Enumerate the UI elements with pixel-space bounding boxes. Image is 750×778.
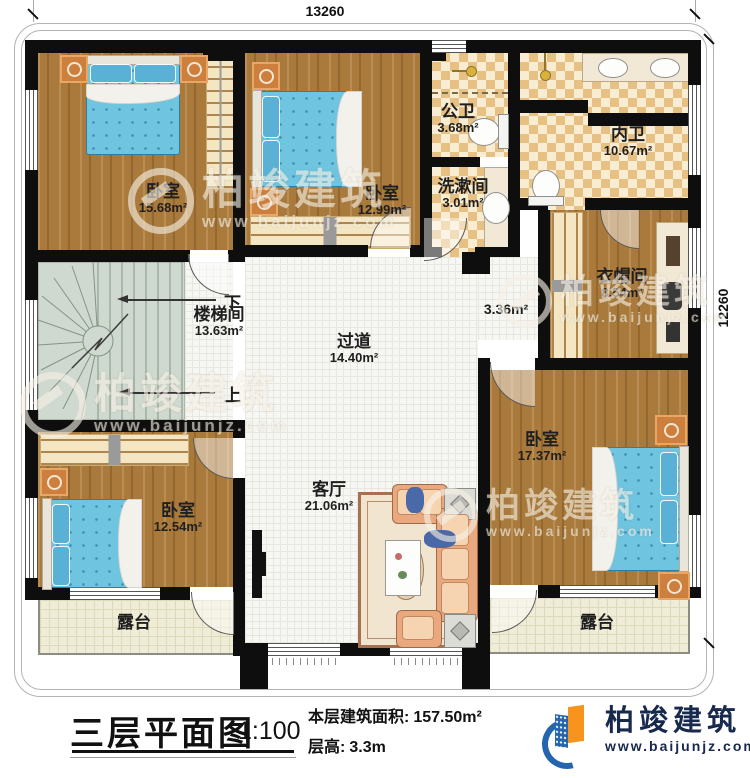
room-label-cloakroom: 衣帽间 8.54m² — [597, 268, 648, 299]
pillow — [134, 64, 176, 83]
sofa-cushion — [441, 548, 469, 580]
wall — [233, 478, 245, 656]
dimension-top: 13260 — [270, 3, 380, 19]
room-label-bedroom-top-left: 卧室 15.68m² — [139, 183, 187, 214]
tv — [252, 530, 262, 598]
person — [424, 530, 456, 548]
toilet-tank — [528, 196, 564, 206]
room-label-terrace-right: 露台 — [580, 614, 614, 632]
toilet-tank — [498, 114, 509, 149]
wall — [585, 198, 688, 210]
desk-chair — [662, 282, 682, 310]
dimension-right: 12260 — [715, 273, 731, 343]
nightstand — [40, 468, 68, 496]
window — [432, 40, 466, 53]
stairs-up-line — [130, 392, 215, 394]
wardrobe — [40, 434, 189, 466]
room-label-living-room: 客厅 21.06m² — [305, 481, 353, 512]
desk-items — [666, 236, 680, 266]
wall — [233, 587, 245, 600]
room-label-stairwell: 楼梯间 13.63m² — [194, 306, 245, 337]
extension-line — [33, 0, 34, 22]
wall — [535, 358, 701, 370]
window — [560, 585, 655, 598]
window — [688, 228, 701, 308]
desk-items — [666, 322, 680, 342]
staircase — [38, 262, 185, 420]
pillow — [52, 546, 70, 586]
floor-area-line: 本层建筑面积:157.50m² — [304, 703, 482, 733]
railing — [272, 658, 336, 665]
window — [25, 498, 38, 578]
bed-sheet-fold — [336, 91, 362, 187]
brand-website: www.baijunjz.com — [605, 736, 750, 757]
wall — [233, 53, 245, 250]
wall — [233, 432, 245, 438]
wall — [25, 40, 701, 53]
room-label-bedroom-bottom-right: 卧室 17.37m² — [518, 431, 566, 462]
floor-area-label: 本层建筑面积: — [308, 709, 409, 726]
cloakroom-hangers — [551, 212, 583, 360]
bed-headboard — [679, 446, 689, 572]
fixture-arm — [452, 70, 467, 72]
floor-area-value: 157.50m² — [413, 709, 482, 726]
floor-height-value: 3.3m — [349, 739, 385, 756]
window — [70, 587, 160, 600]
stairs-up-arrow — [119, 388, 130, 396]
side-table — [444, 614, 476, 648]
fixture-arm — [544, 53, 546, 71]
shower-head — [540, 70, 551, 81]
railing — [394, 658, 458, 665]
nightstand — [180, 55, 208, 83]
stairs-up-label: 上 — [224, 381, 241, 406]
room-label-bedroom-top-mid: 卧室 12.99m² — [358, 185, 406, 216]
nightstand — [655, 415, 687, 445]
sofa-cushion — [402, 616, 434, 640]
person — [406, 487, 424, 513]
plan-scale: 1:100 — [238, 717, 301, 746]
nightstand — [60, 55, 88, 83]
window — [25, 90, 38, 170]
wall — [478, 585, 490, 598]
bed-sheet-fold — [592, 447, 618, 571]
pillow — [660, 452, 678, 496]
floor-height-line: 层高:3.3m — [304, 733, 482, 763]
bed-headboard — [42, 498, 52, 590]
wardrobe — [206, 55, 235, 189]
plan-title: 三层平面图 — [70, 706, 255, 755]
window — [25, 300, 38, 410]
wall — [538, 585, 560, 598]
floor-height-label: 层高: — [308, 739, 345, 756]
pillow — [90, 64, 132, 83]
nightstand — [658, 572, 690, 600]
wall — [510, 100, 588, 113]
brand-logo: 柏竣建筑 www.baijunjz.com — [544, 703, 750, 761]
bed-sheet-fold — [118, 499, 142, 588]
pillow — [660, 500, 678, 544]
wall — [478, 358, 490, 656]
room-label-master-bathroom: 内卫 10.67m² — [604, 126, 652, 157]
window — [688, 85, 701, 175]
room-label-hallway: 过道 14.40m² — [330, 333, 378, 364]
room-label-public-bathroom: 公卫 3.68m² — [437, 103, 478, 134]
wall — [245, 245, 368, 257]
wall — [25, 420, 245, 432]
plan-info: 本层建筑面积:157.50m² 层高:3.3m — [304, 703, 482, 764]
stairs-down-arrow — [117, 295, 128, 303]
wall — [25, 250, 190, 262]
pillow — [262, 140, 280, 182]
nightstand — [250, 188, 278, 216]
brand-name: 柏竣建筑 — [605, 707, 750, 736]
title-underline — [72, 750, 294, 753]
sink — [598, 58, 628, 78]
wall — [508, 53, 520, 257]
room-label-washroom: 洗漱间 3.01m² — [438, 178, 489, 209]
shower-partition — [432, 92, 508, 94]
wall — [538, 210, 550, 358]
title-underline-thin — [70, 757, 296, 758]
extension-line — [695, 0, 696, 22]
wall — [228, 250, 245, 262]
pillow — [52, 504, 70, 544]
wall — [160, 587, 190, 600]
wall — [475, 247, 508, 257]
floor-plan-page: { "dimensions": { "width_mm": "13260", "… — [0, 0, 750, 771]
room-label-hallway-nook: 3.36m² — [484, 302, 528, 317]
room-label-terrace-left: 露台 — [117, 614, 151, 632]
sofa-cushion — [441, 582, 469, 614]
sink — [650, 58, 680, 78]
wall-column — [240, 643, 268, 689]
coffee-table — [385, 540, 421, 596]
bed-headboard — [252, 90, 262, 188]
tv-stand — [262, 552, 266, 576]
light-fixture — [466, 66, 477, 77]
room-label-bedroom-bottom-left: 卧室 12.54m² — [154, 502, 202, 533]
wall-column — [462, 643, 490, 689]
stairs-down-line — [128, 299, 216, 301]
pillow — [262, 96, 280, 138]
wall — [432, 157, 480, 167]
window — [268, 643, 340, 656]
nightstand — [252, 62, 280, 90]
brand-logo-icon — [544, 703, 598, 761]
